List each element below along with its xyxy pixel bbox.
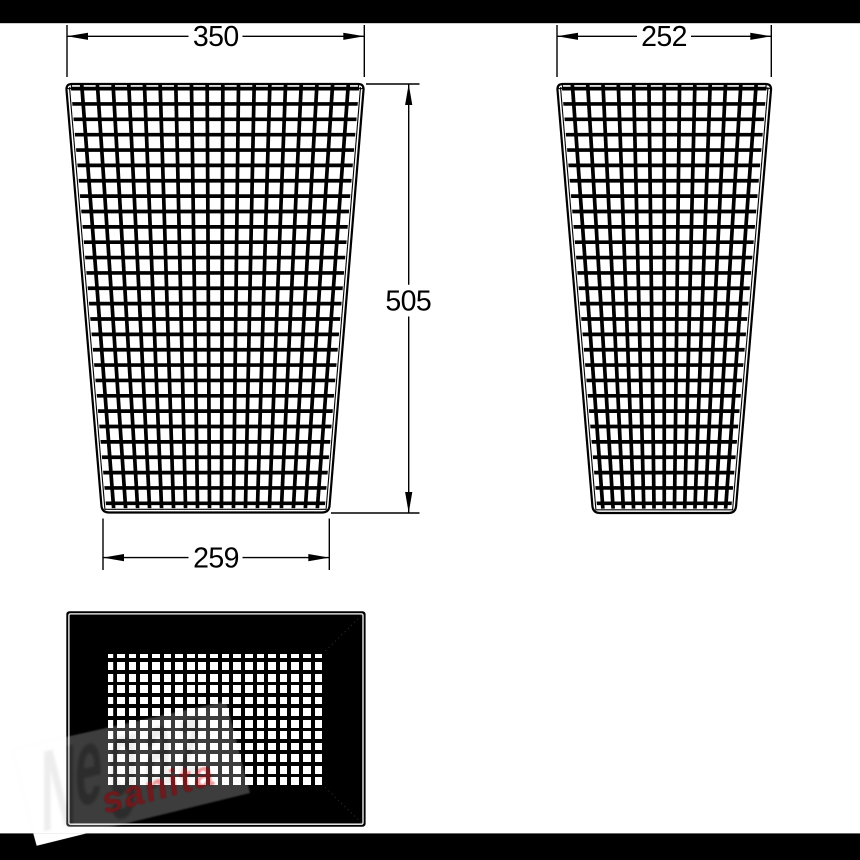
svg-text:N: N — [41, 718, 76, 856]
